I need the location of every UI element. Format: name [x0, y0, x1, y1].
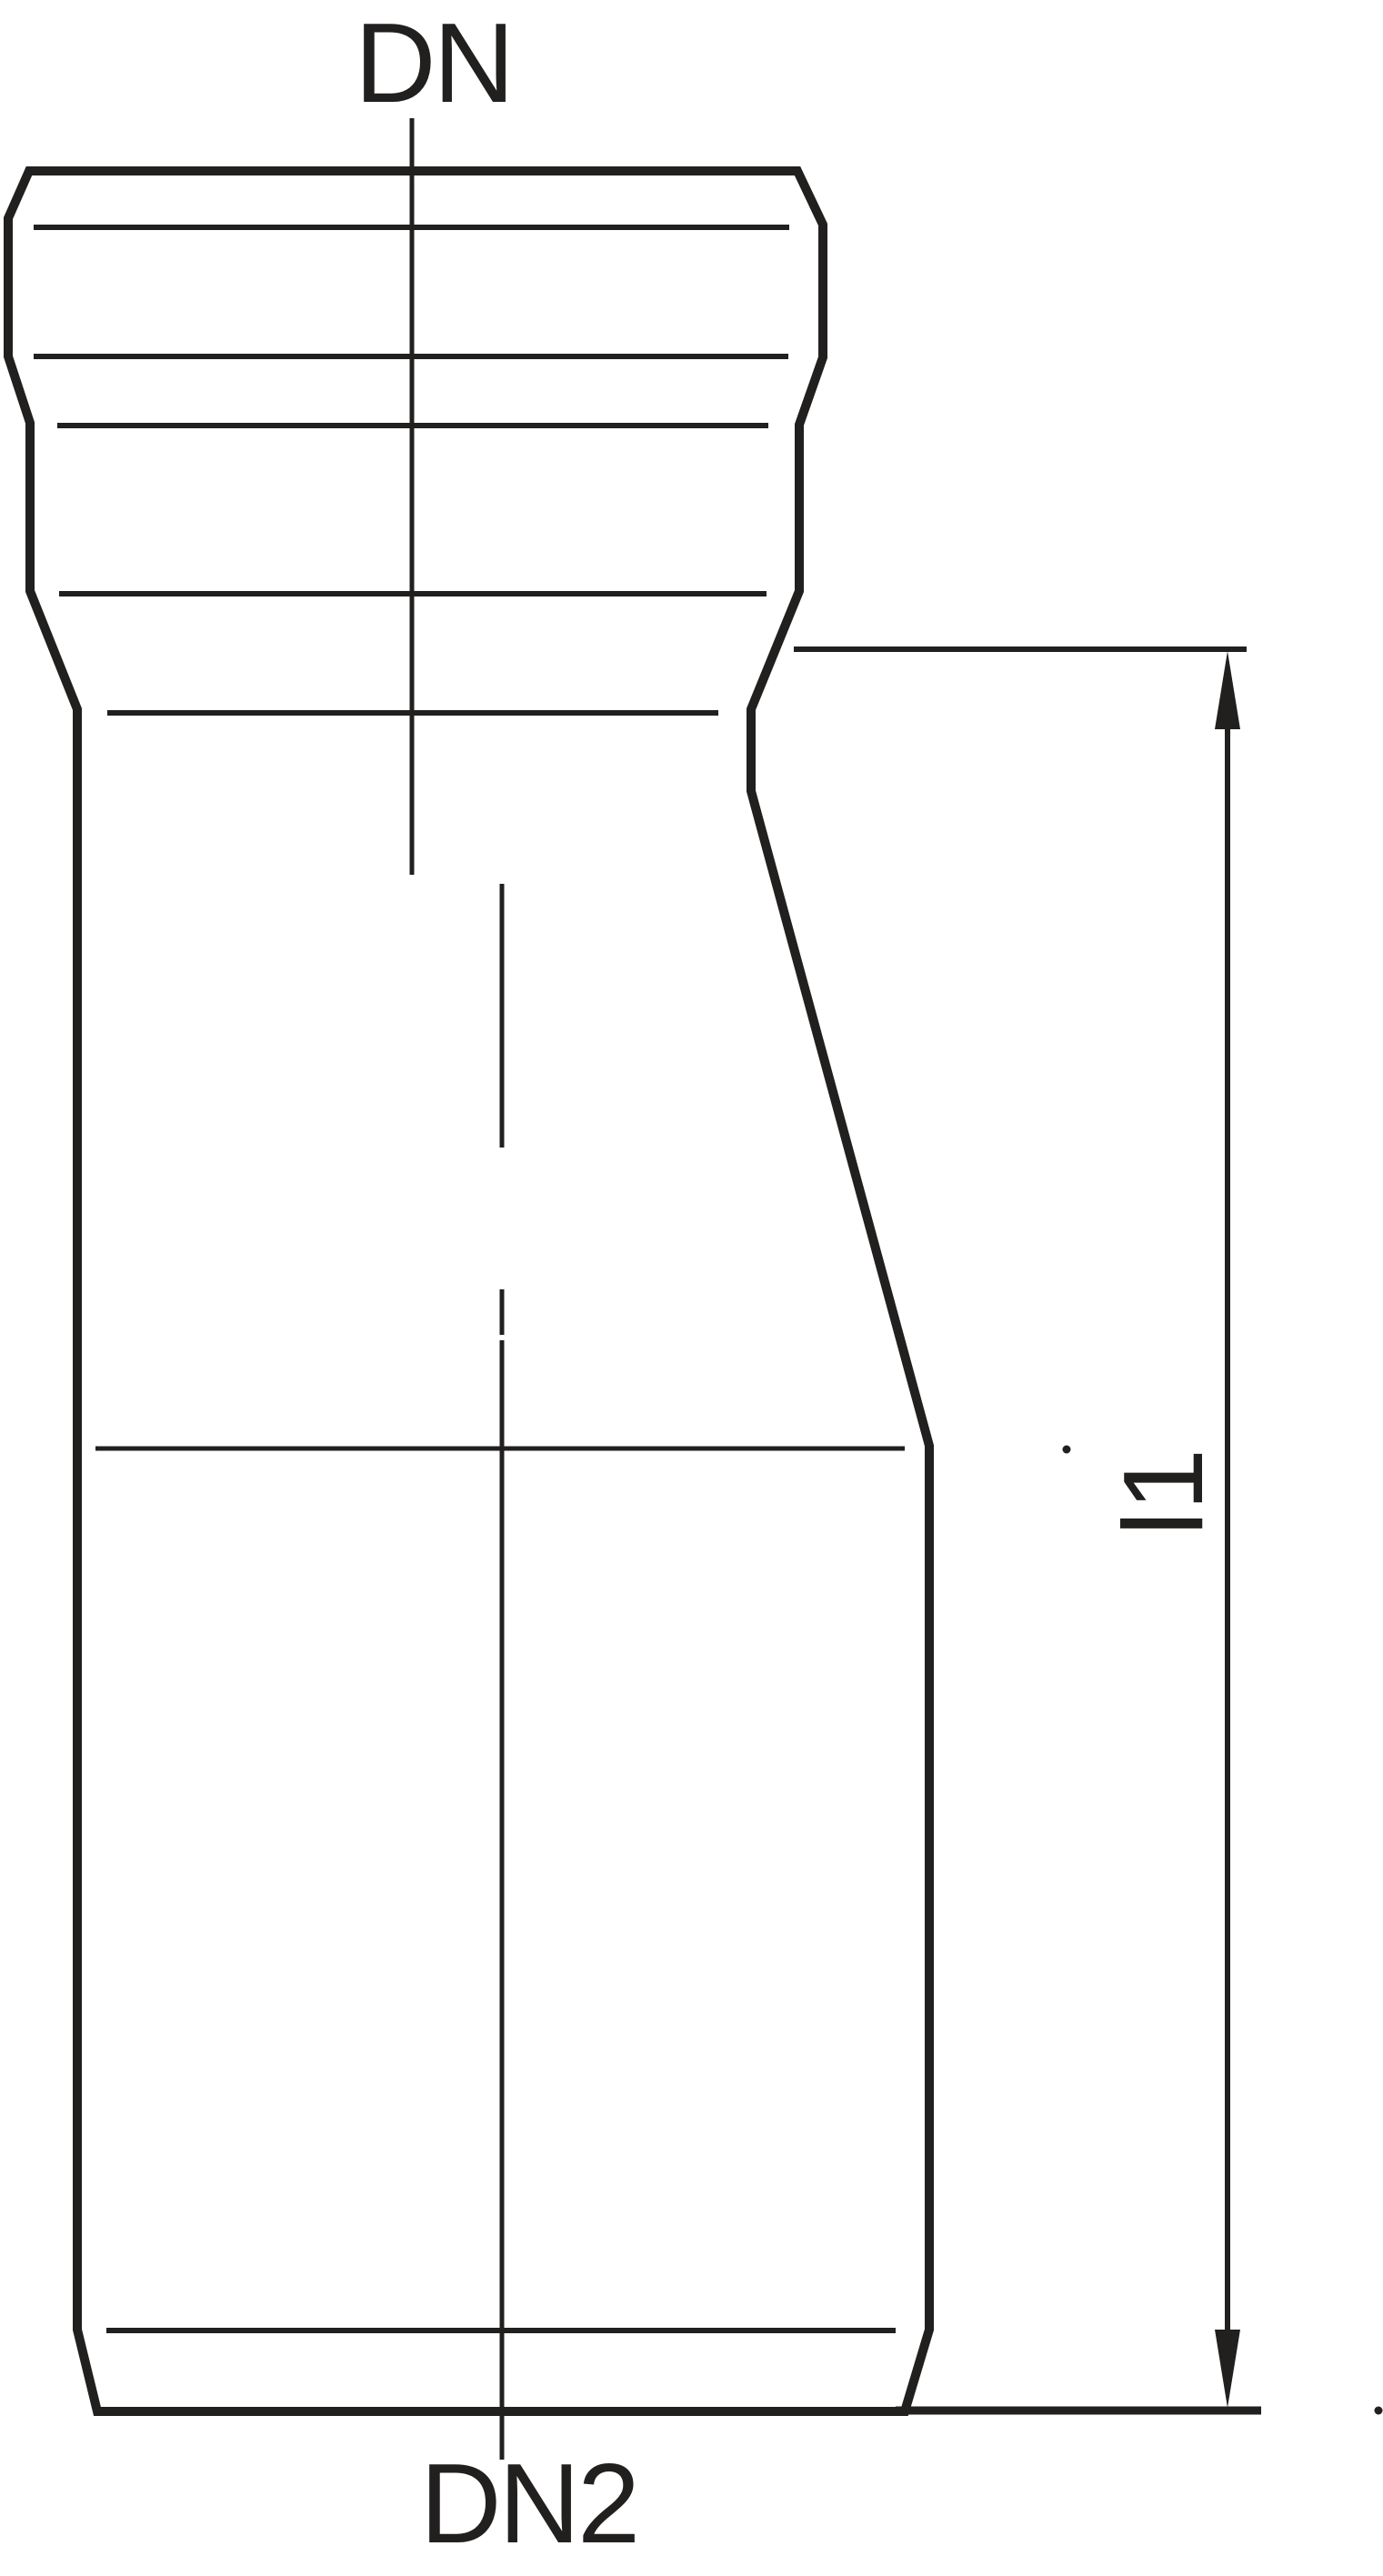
label-dn2: DN2: [420, 2448, 637, 2561]
fitting-outline: [8, 171, 929, 2411]
extension-tick-dot: [1375, 2407, 1383, 2415]
label-l1: l1: [1107, 1442, 1220, 1542]
reducer-drawing-canvas: [0, 0, 1383, 2576]
drawing-root: DN DN2 l1: [0, 0, 1383, 2576]
label-dn: DN: [355, 7, 512, 120]
dimension-arrow-bottom: [1215, 2330, 1240, 2408]
centerline-tick-dot: [1063, 1446, 1071, 1454]
dimension-arrow-top: [1215, 651, 1240, 729]
